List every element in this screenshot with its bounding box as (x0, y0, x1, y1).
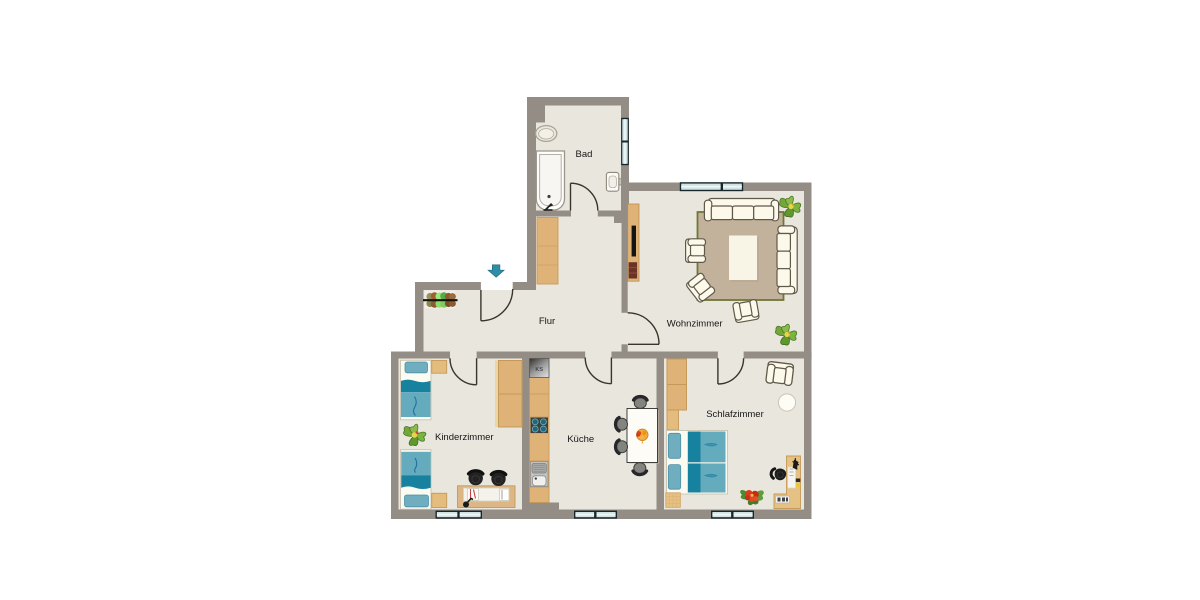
svg-text:Schlafzimmer: Schlafzimmer (706, 409, 764, 420)
svg-text:Kinderzimmer: Kinderzimmer (435, 432, 494, 443)
svg-text:Wohnzimmer: Wohnzimmer (667, 319, 723, 330)
svg-text:KS: KS (535, 367, 543, 373)
svg-text:Küche: Küche (567, 434, 594, 445)
svg-text:Bad: Bad (576, 149, 593, 160)
svg-text:Flur: Flur (539, 316, 555, 327)
